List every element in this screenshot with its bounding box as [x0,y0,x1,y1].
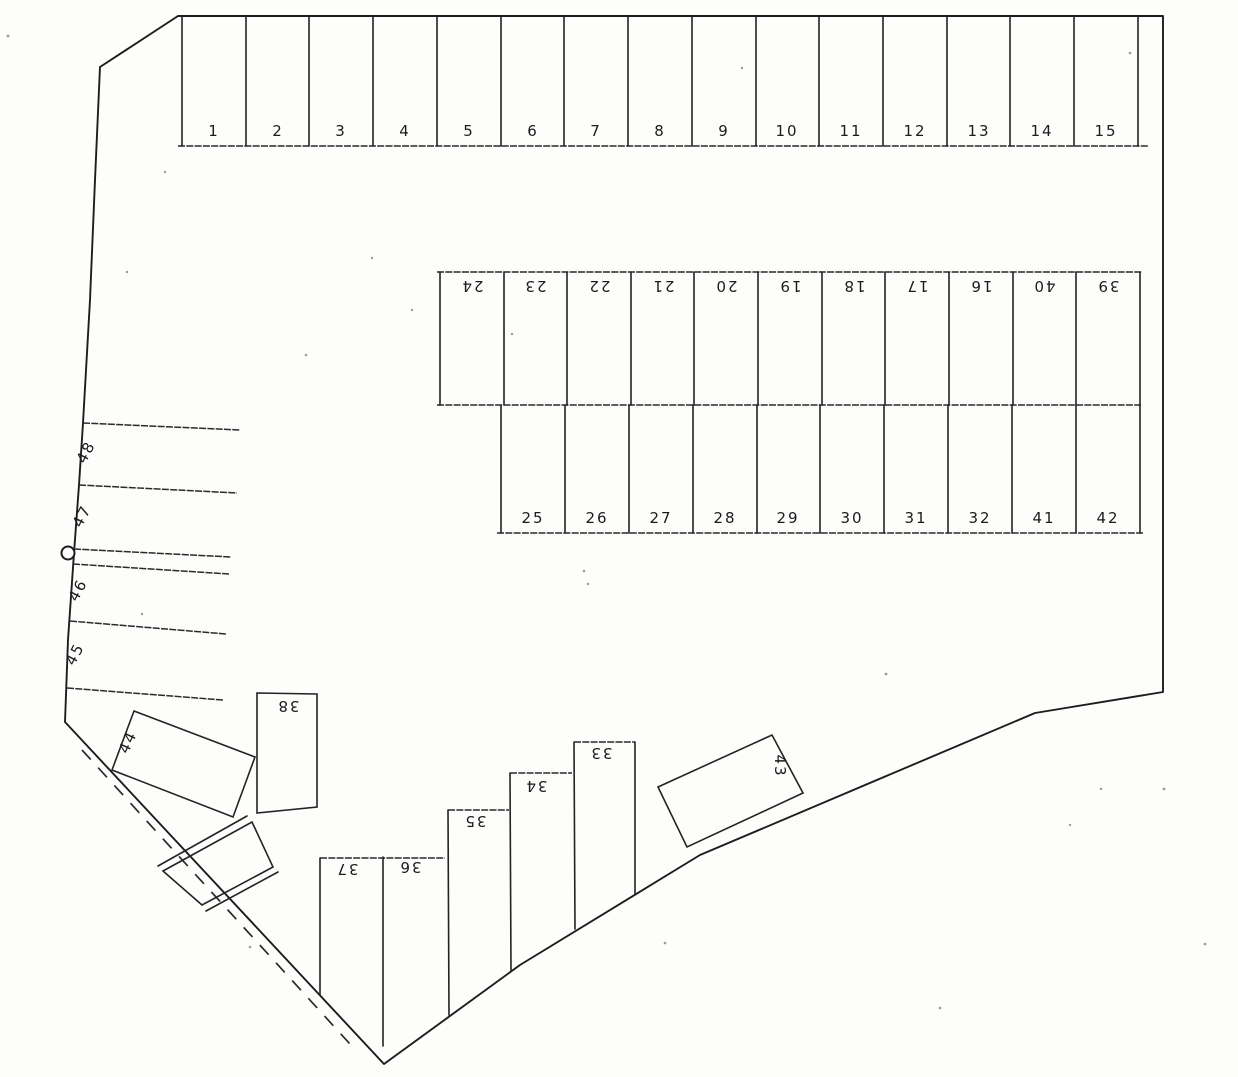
left-parking-column: 48 47 46 45 [62,423,240,700]
stall-divider [448,810,449,1015]
space-label-10: 10 [775,122,798,140]
space-label-25: 25 [521,509,544,527]
space-43-outline [658,735,803,847]
space-label-41: 41 [1032,509,1055,527]
space-label-16: 16 [969,277,992,295]
space-label-3: 3 [335,122,347,140]
space-label-30: 30 [840,509,863,527]
stall-divider [510,773,511,971]
space-label-38: 38 [276,697,299,715]
space-44: 44 [112,711,255,817]
space-label-27: 27 [649,509,672,527]
space-label-23: 23 [523,277,546,295]
space-label-45: 45 [62,640,89,669]
space-43: 43 [658,735,803,847]
space-label-7: 7 [590,122,602,140]
space-label-32: 32 [968,509,991,527]
space-label-29: 29 [776,509,799,527]
space-label-18: 18 [842,277,865,295]
space-label-22: 22 [587,277,610,295]
space-label-33: 33 [589,744,612,762]
space-38: 38 [257,693,317,813]
shed-outline [163,822,273,905]
space-label-36: 36 [398,858,421,876]
shed-structure [158,816,278,911]
space-label-28: 28 [713,509,736,527]
space-label-21: 21 [651,277,674,295]
space-label-35: 35 [463,812,486,830]
stall-divider [70,621,226,634]
middle-parking-block-upper: 24 23 22 21 20 19 18 17 16 40 39 [437,272,1142,405]
space-44-outline [112,711,255,817]
stall-divider [73,564,229,574]
middle-parking-block-lower: 25 26 27 28 29 30 31 32 41 42 [497,405,1143,533]
property-boundary [62,16,1164,1064]
space-label-14: 14 [1030,122,1053,140]
shed-double-edge [158,816,247,866]
space-label-39: 39 [1096,277,1119,295]
space-label-20: 20 [714,277,737,295]
space-label-31: 31 [904,509,927,527]
space-label-17: 17 [905,277,928,295]
stall-divider [74,549,231,557]
space-label-1: 1 [208,122,220,140]
stall-divider [79,485,237,493]
space-label-15: 15 [1094,122,1117,140]
space-label-37: 37 [335,860,358,878]
space-label-24: 24 [460,277,483,295]
space-label-34: 34 [524,777,547,795]
space-label-2: 2 [272,122,284,140]
site-plan-sketch: 1 2 3 4 5 6 7 8 9 10 11 12 13 14 15 24 2… [0,0,1238,1077]
space-label-46: 46 [65,576,92,605]
top-parking-row: 1 2 3 4 5 6 7 8 9 10 11 12 13 14 15 [178,17,1148,146]
stall-divider [83,423,240,430]
stall-divider [574,742,575,929]
space-label-12: 12 [903,122,926,140]
space-label-5: 5 [463,122,475,140]
bottom-step-spaces: 37 36 35 34 33 [320,742,635,1046]
space-label-11: 11 [839,122,862,140]
space-label-9: 9 [718,122,730,140]
space-label-6: 6 [527,122,539,140]
scanned-parking-plan-page: 1 2 3 4 5 6 7 8 9 10 11 12 13 14 15 24 2… [0,0,1238,1077]
space-label-13: 13 [967,122,990,140]
space-label-48: 48 [73,438,100,467]
boundary-polygon [65,16,1163,1064]
space-label-19: 19 [778,277,801,295]
space-label-40: 40 [1032,277,1055,295]
shed-double-edge [206,872,278,911]
space-label-26: 26 [585,509,608,527]
space-label-8: 8 [654,122,666,140]
boundary-marker-circle [62,547,75,560]
space-label-4: 4 [399,122,411,140]
space-label-43: 43 [771,754,789,777]
space-label-42: 42 [1096,509,1119,527]
space-label-47: 47 [69,502,96,531]
stall-divider [67,688,223,700]
